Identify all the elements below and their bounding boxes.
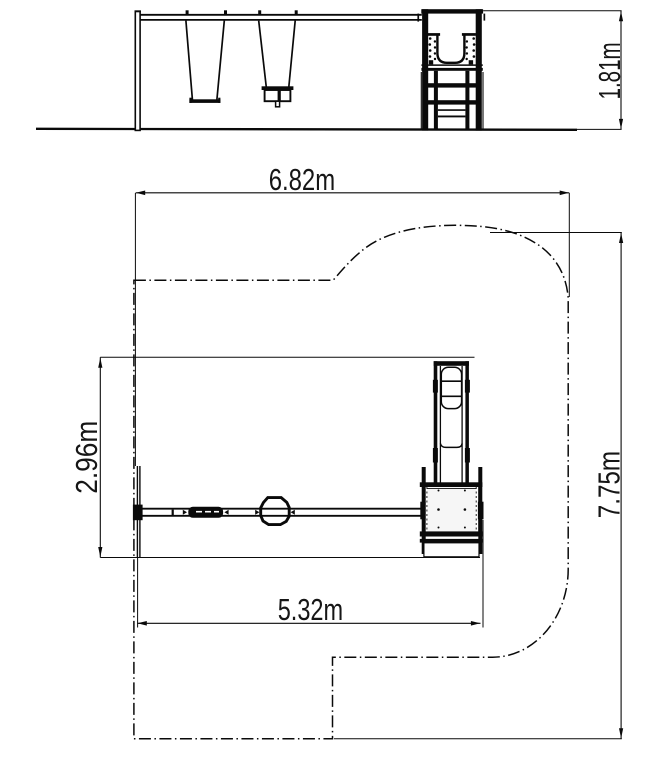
svg-text:5.32m: 5.32m — [278, 592, 343, 627]
svg-text:7.75m: 7.75m — [592, 451, 626, 518]
svg-text:6.82m: 6.82m — [269, 162, 335, 197]
svg-text:2.96m: 2.96m — [70, 421, 104, 494]
svg-text:1.81m: 1.81m — [592, 42, 627, 99]
